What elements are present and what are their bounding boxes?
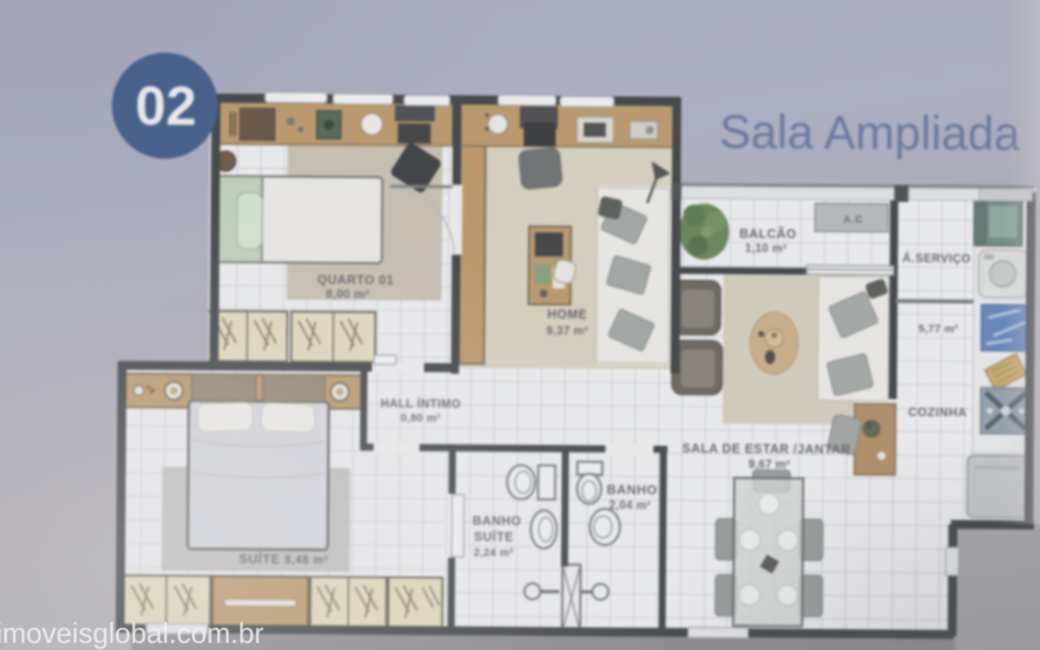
svg-text:imoveisglobal.com.br: imoveisglobal.com.br [0,618,264,650]
